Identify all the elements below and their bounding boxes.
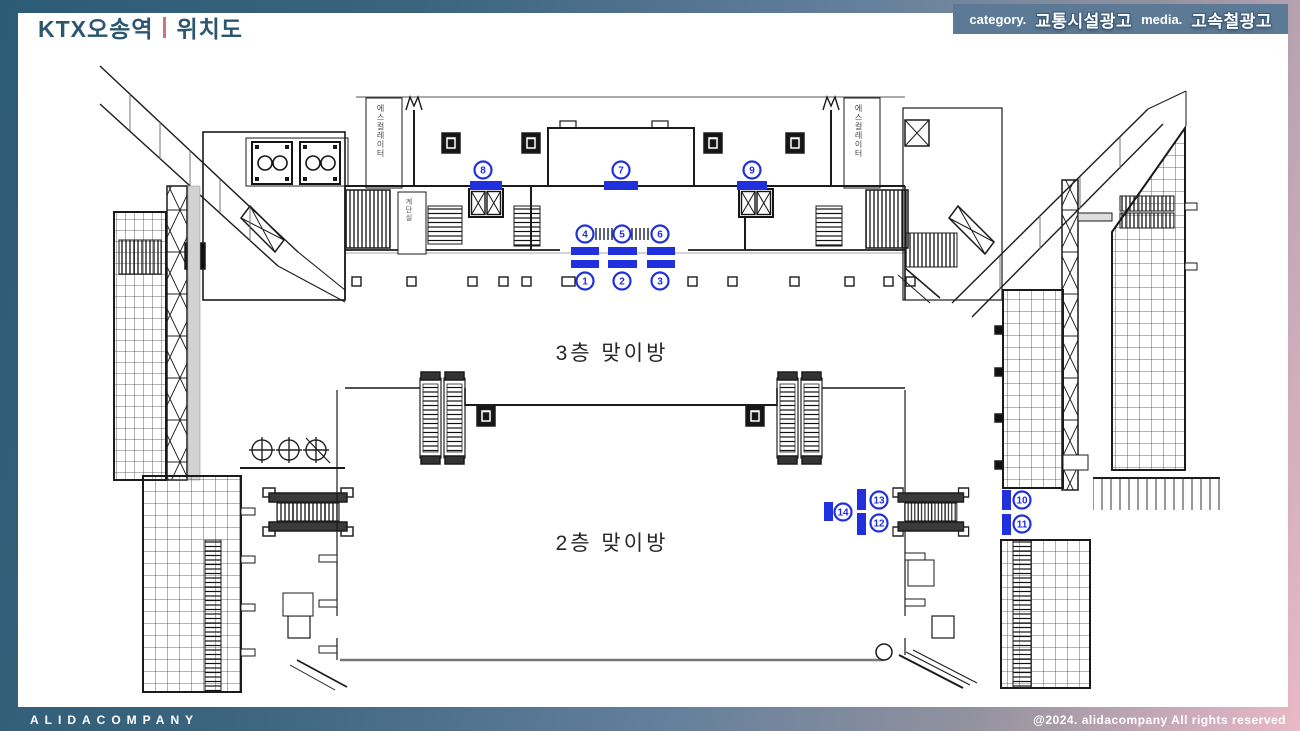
slide-frame: KTX오송역 위치도 category. 교통시설광고 media. 고속철광고…: [0, 0, 1300, 731]
floor3-waiting-room-label: 3층 맞이방: [512, 337, 712, 367]
left-core-vertical-label: 에스컬레이터: [376, 104, 384, 184]
media-label: media.: [1141, 12, 1182, 27]
right-core-vertical-label: 에스컬레이터: [854, 104, 862, 184]
title-divider-bar: [163, 17, 166, 38]
media-value: 고속철광고: [1191, 7, 1272, 32]
map-type-title: 위치도: [176, 10, 242, 44]
station-title: KTX오송역: [38, 10, 153, 44]
company-logo-text: ALIDACOMPANY: [30, 713, 199, 727]
copyright-text: @2024. alidacompany All rights reserved: [1033, 713, 1286, 727]
category-label: category.: [969, 12, 1026, 27]
category-media-badge: category. 교통시설광고 media. 고속철광고: [953, 4, 1288, 34]
stair-room-vertical-label: 계단실: [405, 198, 412, 250]
floor2-waiting-room-label: 2층 맞이방: [512, 527, 712, 557]
category-value: 교통시설광고: [1035, 7, 1132, 32]
page-title: KTX오송역 위치도: [38, 10, 243, 44]
